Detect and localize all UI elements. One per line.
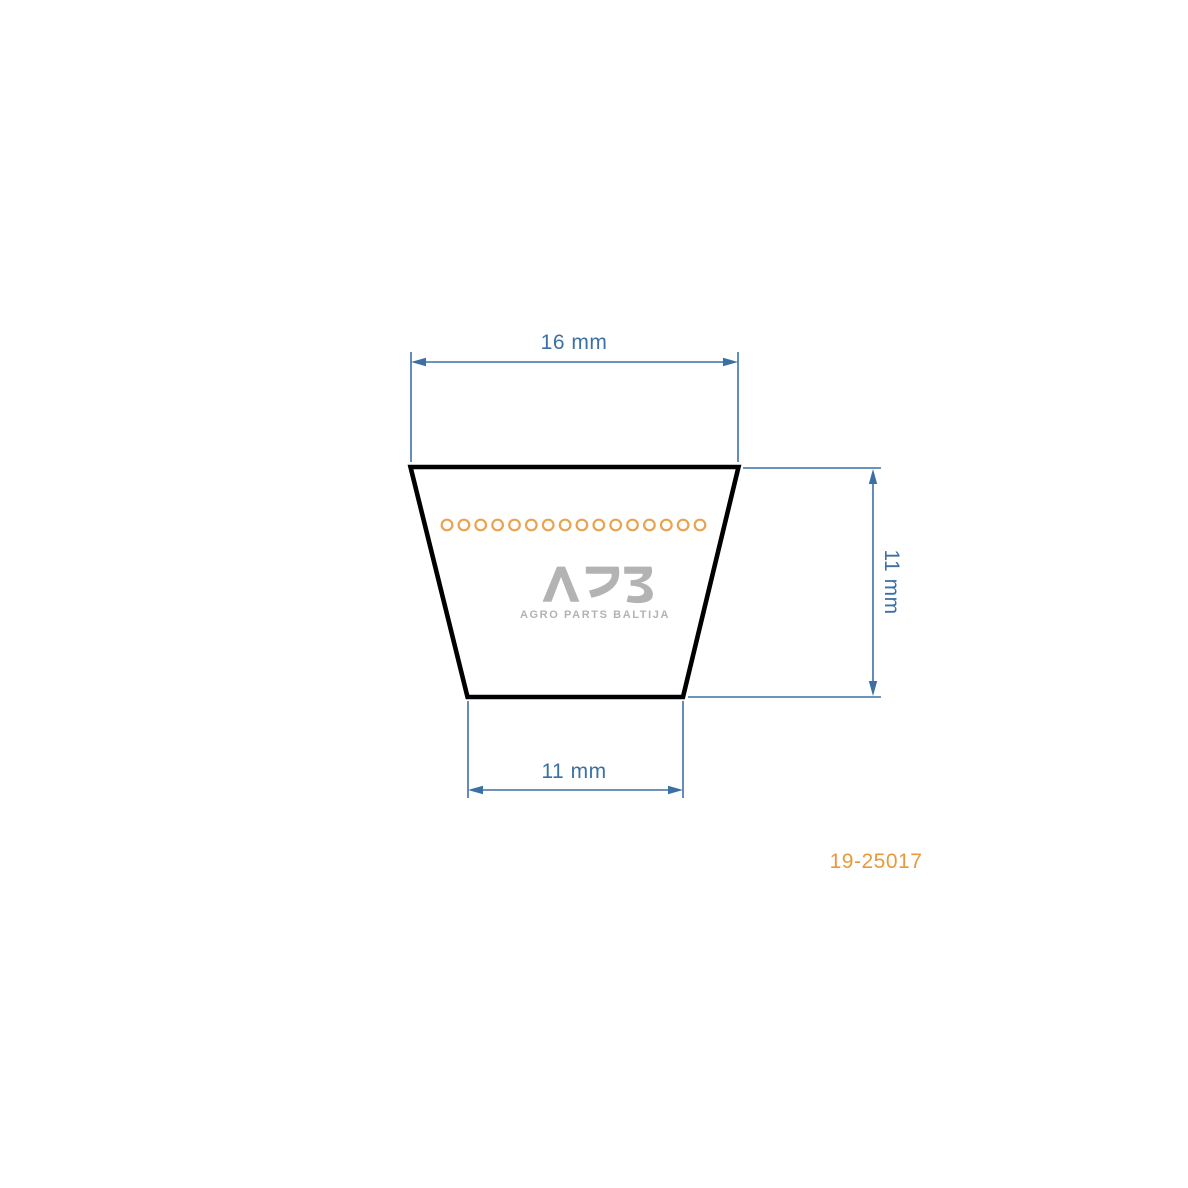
- apb-logo: [543, 567, 653, 603]
- cord-circle: [627, 520, 638, 531]
- cord-circle: [610, 520, 621, 531]
- dimension-height: [688, 468, 881, 697]
- cord-circle: [594, 520, 605, 531]
- arrowhead-down: [869, 681, 877, 696]
- cord-circle: [475, 520, 486, 531]
- cord-circle: [492, 520, 503, 531]
- arrowhead-right: [723, 358, 738, 366]
- dimension-top-width: [411, 352, 738, 462]
- cord-circle: [678, 520, 689, 531]
- part-number: 19-25017: [776, 850, 976, 874]
- arrowhead-right: [668, 786, 683, 794]
- cord-circle: [442, 520, 453, 531]
- watermark-subtitle: AGRO PARTS BALTIJA: [475, 609, 715, 621]
- belt-outline: [411, 467, 739, 697]
- belt-cross-section-drawing: [0, 0, 1188, 1188]
- apb-logo-letter-p: [586, 567, 619, 598]
- arrowhead-left: [411, 358, 426, 366]
- arrowhead-left: [468, 786, 483, 794]
- cord-circle: [509, 520, 520, 531]
- cord-circle: [543, 520, 554, 531]
- cord-circles: [442, 520, 706, 531]
- cord-circle: [560, 520, 571, 531]
- dimension-label-top-width: 16 mm: [474, 331, 674, 355]
- apb-logo-letter-b: [624, 567, 653, 603]
- belt-drawing-stage: 16 mm 11 mm 11 mm AGRO PARTS BALTIJA 19-…: [0, 0, 1188, 1188]
- cord-circle: [695, 520, 706, 531]
- cord-circle: [459, 520, 470, 531]
- cord-circle: [644, 520, 655, 531]
- apb-logo-letter-a: [543, 567, 580, 602]
- cord-circle: [661, 520, 672, 531]
- dimension-label-bottom-width: 11 mm: [474, 760, 674, 784]
- arrowhead-up: [869, 469, 877, 484]
- cord-circle: [526, 520, 537, 531]
- cord-circle: [577, 520, 588, 531]
